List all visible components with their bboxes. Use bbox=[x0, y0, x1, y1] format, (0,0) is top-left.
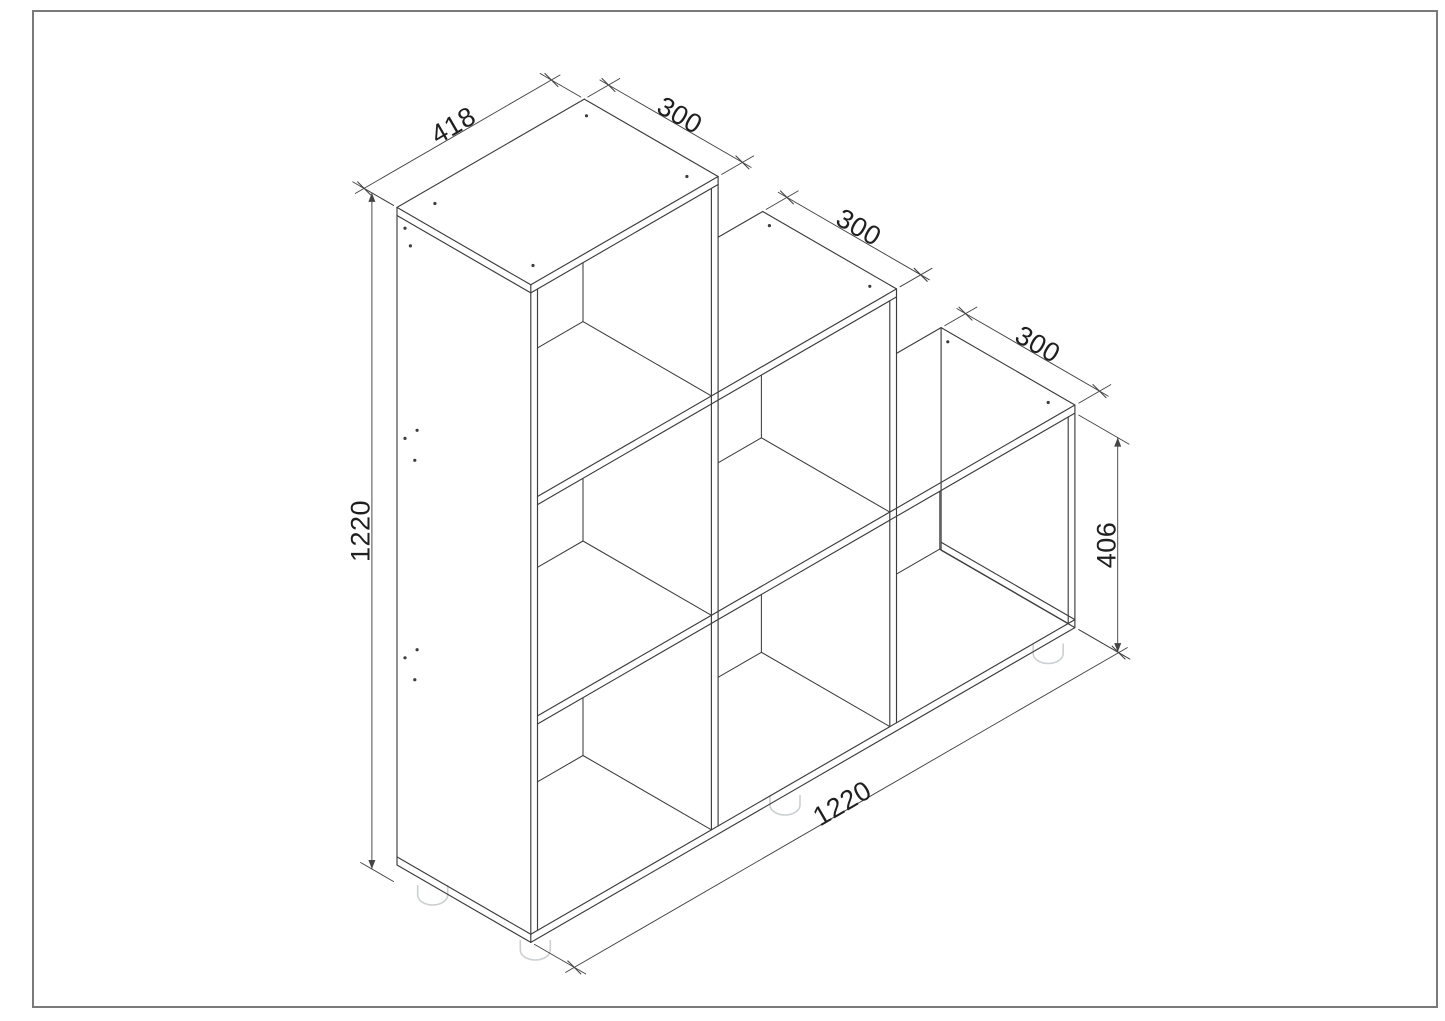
foot bbox=[1033, 644, 1063, 664]
shelf-interior-edges bbox=[538, 263, 1069, 830]
dim-label-col1-top-depth: 300 bbox=[652, 91, 707, 140]
cube-floor-back-edge bbox=[897, 549, 940, 574]
shelf-edge bbox=[538, 413, 1075, 724]
witness-line bbox=[361, 186, 394, 205]
shelf-edge bbox=[397, 865, 531, 942]
cube-floor-back-edge bbox=[538, 541, 584, 567]
shelf-edge bbox=[538, 297, 897, 505]
foot bbox=[770, 795, 800, 815]
dim-label-col3-height: 406 bbox=[1091, 522, 1121, 569]
shelf-edge bbox=[531, 628, 1075, 943]
screw-mark bbox=[416, 429, 419, 432]
screw-mark bbox=[585, 114, 588, 117]
dim-label-col3-top-depth: 300 bbox=[1010, 320, 1065, 369]
tick-slash bbox=[780, 191, 793, 204]
witness-line bbox=[1079, 385, 1111, 404]
shelf-edge bbox=[397, 207, 531, 284]
dim-label-col1-top-width: 418 bbox=[426, 101, 481, 150]
dim-label-overall-height: 1220 bbox=[345, 500, 375, 562]
tick-slash bbox=[568, 961, 581, 974]
witness-line bbox=[1079, 415, 1129, 444]
tick-slash bbox=[602, 79, 615, 92]
tick-slash bbox=[914, 268, 927, 281]
witness-line bbox=[766, 191, 798, 210]
dimension-lines bbox=[353, 74, 1130, 974]
cube-floor-right-edge bbox=[761, 652, 889, 726]
cube-floor-right-edge bbox=[583, 322, 711, 396]
screw-mark bbox=[413, 678, 416, 681]
shelf-edge bbox=[538, 405, 1075, 716]
screw-mark bbox=[868, 285, 871, 288]
screw-mark bbox=[403, 656, 406, 659]
shelf-edge bbox=[538, 289, 897, 497]
witness-line bbox=[540, 74, 581, 98]
screw-mark bbox=[409, 244, 412, 247]
cube-floor-back-edge bbox=[718, 652, 761, 677]
witness-line bbox=[722, 156, 754, 175]
shelf-edge bbox=[941, 542, 1075, 619]
witness-line bbox=[1079, 630, 1130, 660]
shelf-edge bbox=[397, 216, 531, 293]
shelf-edge bbox=[531, 620, 1075, 935]
screw-mark bbox=[403, 227, 406, 230]
shelf-edge bbox=[718, 212, 763, 238]
screw-mark bbox=[413, 459, 416, 462]
cube-floor-back-edge bbox=[718, 438, 761, 463]
screw-mark bbox=[416, 648, 419, 651]
foot bbox=[520, 940, 550, 960]
dimension-418 bbox=[353, 74, 581, 206]
isometric-technical-drawing: 418 300 300 300 1220 406 1220 bbox=[0, 0, 1445, 1021]
cube-floor-right-edge bbox=[583, 756, 711, 830]
screw-mark bbox=[946, 340, 949, 343]
screw-mark bbox=[1047, 401, 1050, 404]
shelf-edge bbox=[531, 177, 718, 285]
witness-line bbox=[900, 268, 932, 287]
screw-mark bbox=[768, 224, 771, 227]
page-border bbox=[33, 11, 1437, 1007]
shelf-edge bbox=[531, 185, 718, 293]
tick-slash bbox=[545, 74, 558, 87]
witness-line bbox=[945, 307, 977, 326]
tick-slash bbox=[959, 307, 972, 320]
cube-floor-right-edge bbox=[583, 541, 711, 615]
dimension-labels: 418 300 300 300 1220 406 1220 bbox=[345, 91, 1121, 832]
screw-mark bbox=[685, 175, 688, 178]
screw-marks bbox=[403, 114, 1049, 681]
screw-mark bbox=[403, 437, 406, 440]
dim-label-col2-top-depth: 300 bbox=[831, 203, 886, 252]
witness-line bbox=[361, 863, 394, 882]
tick-slash bbox=[1093, 385, 1106, 398]
cube-floor-back-edge bbox=[538, 322, 584, 348]
cube-floor-right-edge bbox=[940, 549, 1068, 623]
cube-floor-back-edge bbox=[538, 756, 584, 782]
drawing-canvas: 418 300 300 300 1220 406 1220 bbox=[0, 0, 1445, 1021]
shelf-edge bbox=[897, 328, 942, 354]
tick-slash bbox=[736, 156, 749, 169]
screw-mark bbox=[433, 202, 436, 205]
shelf-body-edges bbox=[397, 99, 1075, 942]
screw-mark bbox=[531, 264, 534, 267]
cube-floor-right-edge bbox=[761, 438, 889, 512]
foot bbox=[418, 885, 448, 905]
witness-line bbox=[588, 79, 620, 98]
dim-label-overall-width: 1220 bbox=[808, 775, 877, 832]
